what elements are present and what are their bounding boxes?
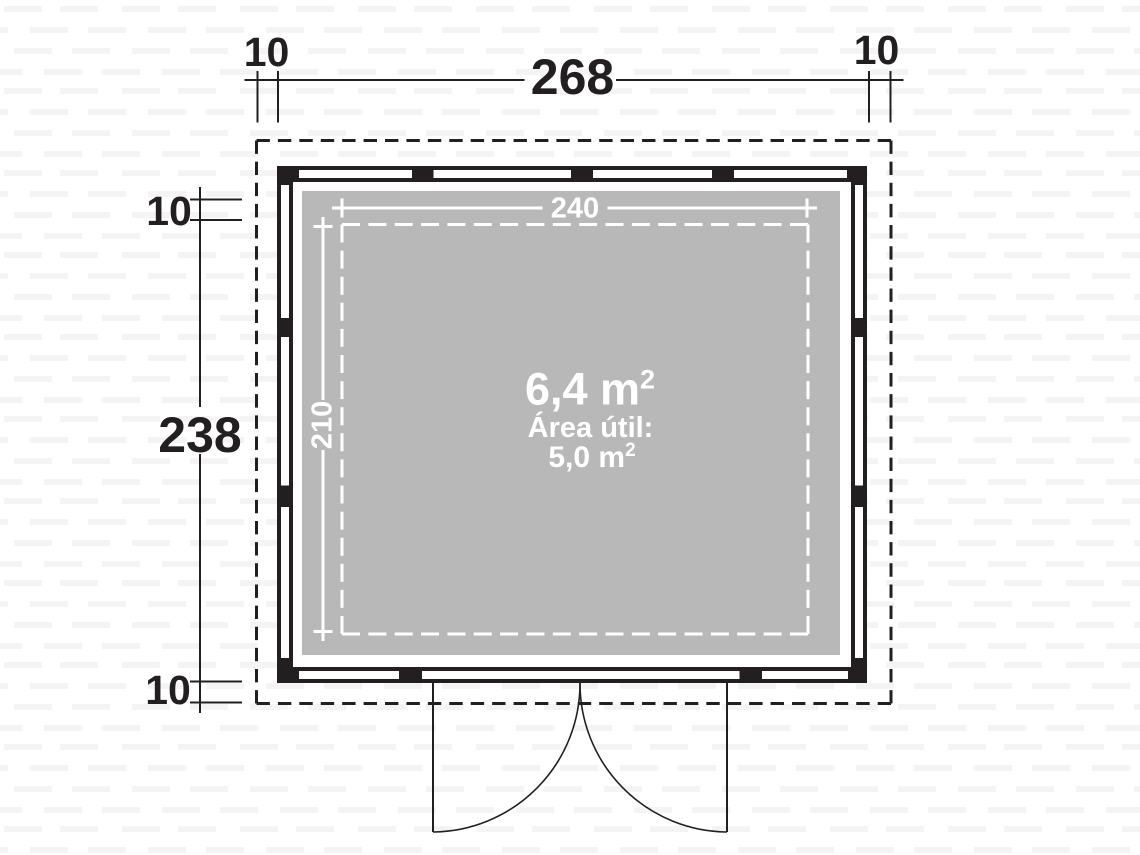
svg-text:6,4 m2: 6,4 m2 <box>525 364 655 415</box>
svg-text:10: 10 <box>146 188 192 234</box>
svg-text:10: 10 <box>244 29 290 75</box>
svg-text:10: 10 <box>854 27 900 73</box>
svg-text:240: 240 <box>551 193 599 225</box>
svg-text:238: 238 <box>158 407 241 463</box>
svg-text:268: 268 <box>531 49 614 105</box>
svg-text:5,0 m2: 5,0 m2 <box>548 440 635 474</box>
svg-text:Área útil:: Área útil: <box>528 410 654 444</box>
svg-text:210: 210 <box>307 401 339 449</box>
svg-text:10: 10 <box>145 667 191 713</box>
